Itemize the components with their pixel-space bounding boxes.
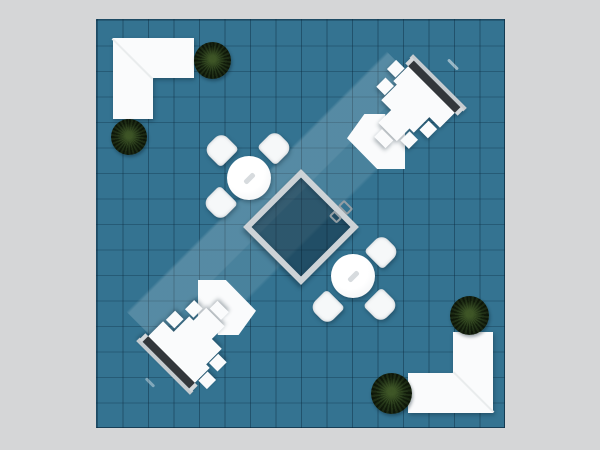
chair — [363, 287, 399, 323]
plant — [194, 42, 231, 79]
plant — [450, 296, 489, 335]
booth-render-canvas — [0, 0, 600, 450]
chair — [309, 289, 345, 325]
light-streak — [145, 377, 156, 388]
l-counter-arm — [453, 332, 493, 413]
light-streak — [447, 58, 459, 70]
l-counter-arm — [113, 38, 153, 119]
plant — [111, 119, 147, 155]
plant — [371, 373, 412, 414]
booth-floor — [96, 19, 505, 428]
